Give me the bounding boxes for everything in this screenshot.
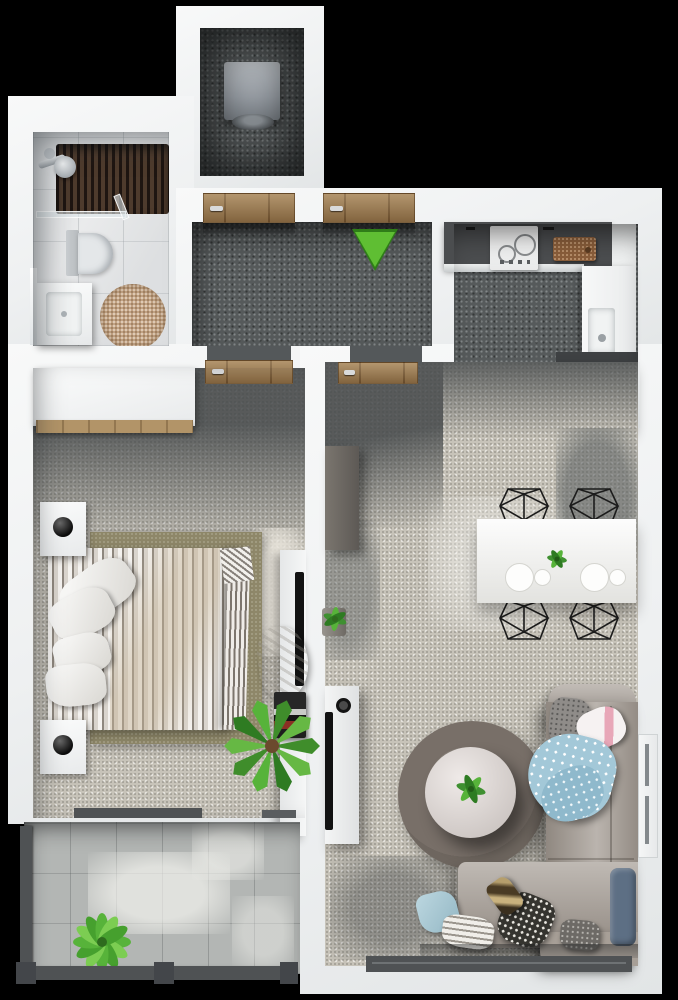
- sink-faucet: [598, 334, 606, 342]
- nightstand-bottom-lamp: [53, 735, 73, 755]
- sofa-cushion-navy: [610, 868, 636, 946]
- plate-left: [505, 563, 534, 592]
- balcony-rail-post-right: [280, 962, 298, 984]
- kitchen-sink: [588, 308, 615, 354]
- sideboard-cabinet: [325, 446, 359, 550]
- bath-mirror-strip: [30, 268, 37, 345]
- bed-pillow-4: [44, 661, 108, 709]
- counter-gap-dark: [556, 352, 638, 362]
- shower-glass-screen: [36, 211, 126, 218]
- cooktop-knobs: [500, 260, 530, 264]
- table-centerpiece-plant-icon: [542, 544, 572, 574]
- coffee-table-plant-icon: [450, 768, 492, 810]
- window-right-handle-bottom: [645, 796, 649, 844]
- pillow-dark-grey: [559, 918, 601, 951]
- plate-right: [580, 563, 609, 592]
- entrance-door-handle: [330, 206, 343, 211]
- bedroom-palm-plant-icon: [222, 696, 322, 796]
- balcony-slider-track-2: [262, 810, 296, 818]
- bath-round-rug: [100, 284, 166, 346]
- wardrobe: [33, 368, 195, 426]
- counter-utensil-mid: [543, 227, 554, 230]
- counter-utensil-left: [466, 227, 475, 230]
- hallway-floor: [192, 222, 432, 346]
- living-door-handle: [344, 370, 355, 375]
- dining-chair-bottom-left: [498, 598, 550, 642]
- washing-machine: [224, 62, 280, 120]
- shower-wood-deck: [56, 144, 169, 214]
- dining-chair-bottom-right: [568, 598, 620, 642]
- bedroom-door-handle: [212, 369, 224, 374]
- balcony-rail-left: [20, 826, 32, 974]
- wardrobe-wood-shelf: [36, 420, 193, 433]
- balcony-rail-post-center: [154, 962, 174, 984]
- nightstand-top-lamp: [53, 517, 73, 537]
- tv-living: [325, 712, 333, 830]
- window-bottom-glass-line: [372, 962, 626, 964]
- burner-large: [514, 234, 536, 256]
- balcony-rail-post-left: [16, 962, 36, 984]
- shower-control: [44, 148, 55, 159]
- cutting-board-hole: [585, 247, 591, 253]
- bed-fold-corner: [220, 546, 254, 584]
- kitchen-upper-cabinet: [612, 224, 636, 270]
- glass-right: [609, 569, 626, 586]
- potted-plant-icon: [316, 600, 354, 638]
- sofa-seat-seam: [548, 858, 634, 860]
- floor-plan-canvas: [0, 0, 678, 1000]
- record-player-knob: [336, 698, 351, 713]
- shower-head: [54, 156, 76, 178]
- washing-machine-base: [232, 114, 274, 130]
- balcony-slider-track: [74, 808, 202, 818]
- closet-door-handle: [210, 206, 223, 211]
- basin-drain: [61, 311, 67, 317]
- window-bottom: [366, 956, 632, 972]
- bath-rug-clip: [100, 284, 169, 346]
- window-right-handle-top: [645, 744, 649, 786]
